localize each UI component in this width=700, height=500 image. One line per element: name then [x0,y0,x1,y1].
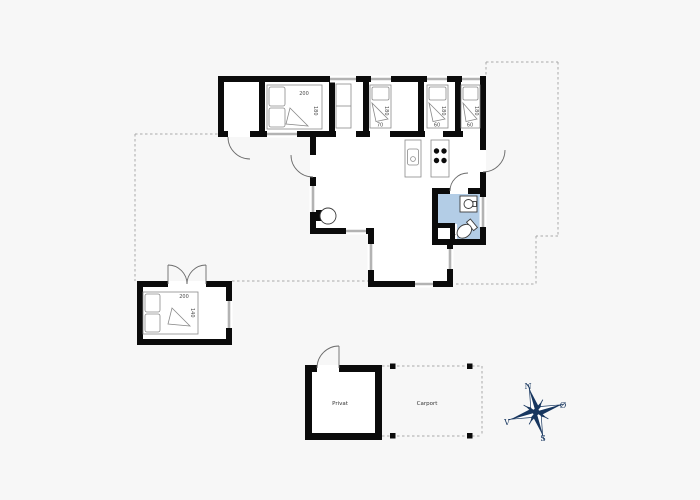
terrace-door-arc [291,155,313,177]
annex-bed-length-label: 200 [179,294,189,300]
single-bedroom-1: 180 70 [370,85,391,129]
hall-wardrobe [336,84,351,128]
compass-west-label: V [503,418,510,427]
single-bedroom-3: 180 60 [461,85,480,129]
single-bed-2-width-label: 60 [434,123,440,129]
compass-north-label: N [525,382,532,391]
east-door-arc [483,150,505,172]
floor-plan-page: 200 180 180 70 180 60 180 60 [0,0,700,500]
single-bed-3-width-label: 60 [467,123,473,129]
floor-plan-canvas: 200 180 180 70 180 60 180 60 [0,0,700,500]
double-bedroom: 200 180 [267,85,322,129]
annex-bed-width-label: 140 [189,308,195,318]
single-bed-3-length-label: 180 [473,106,479,116]
double-bed-length-label: 200 [299,91,309,97]
double-bed-width-label: 180 [312,106,318,116]
kitchen-sink-icon [405,140,421,177]
compass-east-label: Ø [560,401,567,410]
carport-label: Carport [417,401,439,407]
privat-door-arc [317,346,339,368]
stove-icon [431,140,449,177]
entry-door-arc [228,137,250,159]
compass-rose: N Ø S V [500,376,572,448]
single-bed-1-width-label: 70 [377,123,383,129]
single-bed-1-length-label: 180 [383,106,389,116]
compass-south-label: S [540,434,545,443]
single-bedroom-2: 180 60 [427,85,448,129]
privat-label: Privat [332,401,349,407]
washbasin-icon [460,196,477,212]
single-bed-2-length-label: 180 [440,106,446,116]
carport-area: Carport [382,364,482,439]
